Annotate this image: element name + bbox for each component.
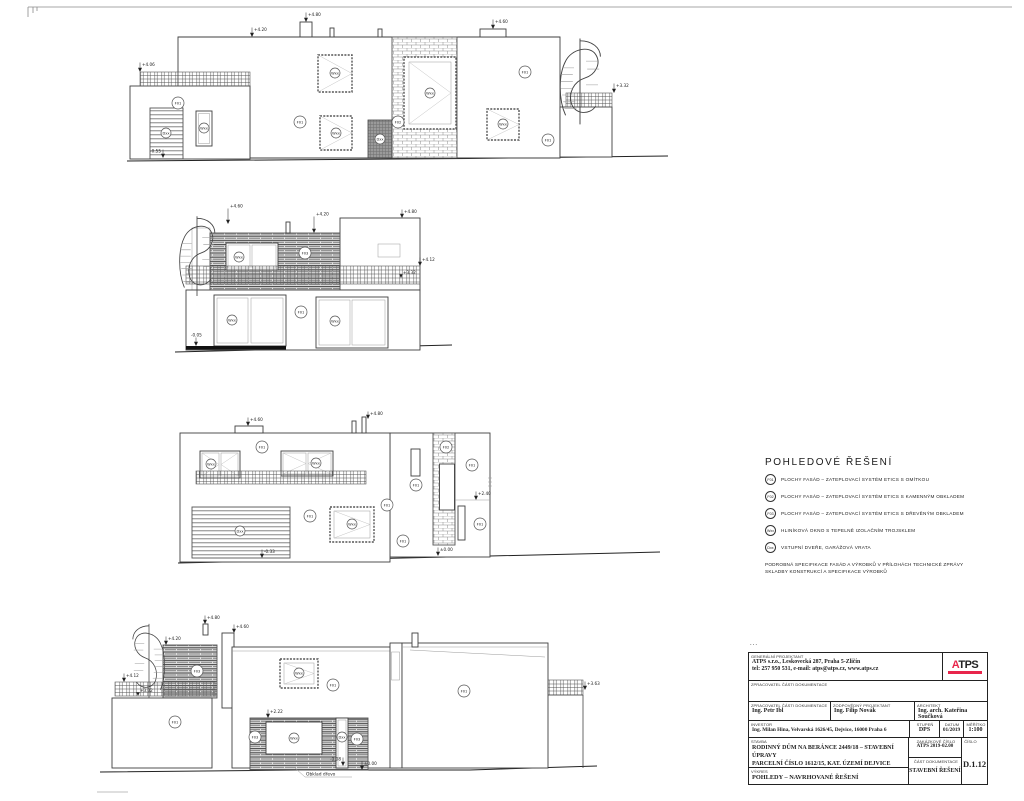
facade-tag: F01	[474, 518, 486, 530]
legend-item-text: VSTUPNÍ DVEŘE, GARÁŽOVÁ VRATA	[781, 545, 871, 550]
svg-text:-0.55: -0.55	[150, 149, 161, 154]
facade-tag: F03	[249, 731, 261, 743]
svg-text:-0.05: -0.05	[191, 333, 202, 338]
svg-text:F01: F01	[297, 121, 304, 125]
svg-text:Wxx: Wxx	[207, 463, 216, 467]
facade-tag: F02	[440, 441, 452, 453]
svg-text:Wxx: Wxx	[499, 123, 508, 127]
legend-item-text: PLOCHY FASÁD – ZATEPLOVACÍ SYSTÉM ETICS …	[781, 511, 964, 516]
svg-text:Wxx: Wxx	[312, 462, 321, 466]
legend-item: Wxx HLINÍKOVÁ OKNO S TEPELNĚ IZOLAČNÍM T…	[765, 525, 1003, 536]
facade-tag: F01	[169, 716, 181, 728]
svg-text:Dxx: Dxx	[376, 138, 384, 142]
level-mark: +4.80	[366, 411, 383, 419]
facade-tag: F01	[519, 66, 531, 78]
svg-text:F01: F01	[298, 311, 305, 315]
svg-text:F03: F03	[302, 252, 309, 256]
elevation-2: Wxx F03 F01 Wxx Wxx +4.60 +4.20 +4.80 +4…	[175, 204, 452, 353]
window-tag: Wxx	[498, 119, 508, 129]
svg-text:-0.33: -0.33	[264, 549, 275, 554]
facade-tag: F03	[765, 508, 776, 519]
railing	[186, 266, 420, 284]
legend-item-text: PLOCHY FASÁD – ZATEPLOVACÍ SYSTÉM ETICS …	[781, 477, 929, 482]
title-block-bottom: STAVBA RODINNÝ DŮM NA BERÁNCE 2449/18 – …	[749, 738, 987, 784]
svg-text:+4.80: +4.80	[308, 12, 321, 17]
level-mark: +4.80	[203, 615, 220, 624]
svg-text:+4.20: +4.20	[168, 636, 181, 641]
svg-text:+2.22: +2.22	[270, 709, 283, 714]
svg-text:+4.80: +4.80	[207, 615, 220, 620]
svg-text:Wxx: Wxx	[200, 127, 209, 131]
svg-text:+4.06: +4.06	[142, 62, 155, 67]
svg-text:Wxx: Wxx	[290, 737, 299, 741]
door-tag: Dxx	[161, 128, 171, 138]
legend-item: F01 PLOCHY FASÁD – ZATEPLOVACÍ SYSTÉM ET…	[765, 474, 1003, 485]
window-tag: Wxx	[331, 128, 341, 138]
facade-tag: F01	[172, 97, 184, 109]
svg-text:+4.60: +4.60	[495, 19, 508, 24]
facade-tag: F01	[466, 459, 478, 471]
title-block-dots: ...	[750, 641, 758, 647]
svg-text:+3.32: +3.32	[140, 688, 153, 693]
svg-text:F01: F01	[522, 71, 529, 75]
svg-text:F01: F01	[469, 464, 476, 468]
zakazkove-cislo-value: ATPS 2019-02.00	[909, 744, 962, 749]
legend-item: F02 PLOCHY FASÁD – ZATEPLOVACÍ SYSTÉM ET…	[765, 491, 1003, 502]
svg-text:+3.32: +3.32	[616, 83, 629, 88]
svg-text:+4.60: +4.60	[236, 624, 249, 629]
svg-text:+4.80: +4.80	[370, 411, 383, 416]
facade-tag: F01	[542, 134, 554, 146]
facade-tag: F01	[765, 474, 776, 485]
window-tag: Wxx	[227, 315, 237, 325]
svg-text:Wxx: Wxx	[332, 132, 341, 136]
svg-text:±0.00: ±0.00	[364, 761, 377, 766]
level-mark: +4.60	[232, 624, 249, 633]
atps-logo: ATPS	[942, 653, 987, 680]
level-mark: +4.60	[226, 204, 243, 225]
facade-tag: F03	[299, 247, 311, 259]
railing	[115, 682, 215, 696]
title-block-row-general: GENERÁLNÍ PROJEKTANT ATPS s.r.o., Leskov…	[749, 653, 987, 681]
svg-text:+3.63: +3.63	[587, 681, 600, 686]
legend-item: Dxx VSTUPNÍ DVEŘE, GARÁŽOVÁ VRATA	[765, 542, 1003, 553]
legend: POHLEDOVÉ ŘEŠENÍ F01 PLOCHY FASÁD – ZATE…	[765, 457, 1003, 575]
facade-tag: F02	[765, 491, 776, 502]
level-mark: +4.12	[418, 257, 435, 266]
svg-text:+4.80: +4.80	[404, 209, 417, 214]
elevation-3: F01 F01 F01 F01 F01 F01 F01 F02 Wxx Wxx …	[178, 411, 660, 563]
svg-text:+4.20: +4.20	[254, 27, 267, 32]
svg-text:F01: F01	[307, 515, 314, 519]
door-tag: Dxx	[375, 134, 385, 144]
door-tag: Dxx	[235, 526, 245, 536]
legend-title: POHLEDOVÉ ŘEŠENÍ	[765, 457, 1003, 468]
window-tag: Wxx	[425, 88, 435, 98]
svg-text:Wxx: Wxx	[235, 256, 244, 260]
svg-text:F01: F01	[330, 684, 337, 688]
door-tag: Dxx	[765, 542, 776, 553]
level-mark: +4.60	[246, 417, 263, 426]
facade-tag: F01	[294, 116, 306, 128]
svg-text:F01: F01	[384, 504, 391, 508]
svg-text:+4.60: +4.60	[230, 204, 243, 209]
facade-tag: F01	[327, 679, 339, 691]
railing	[196, 471, 366, 484]
svg-text:+3.32: +3.32	[403, 270, 416, 275]
stavba-line1: RODINNÝ DŮM NA BERÁNCE 2449/18 – STAVEBN…	[749, 744, 908, 760]
svg-text:F01: F01	[461, 690, 468, 694]
elevation-4: Obklad dřevo F01 F01 F01 F03 F03 F03 Wxx…	[100, 615, 600, 778]
svg-text:F01: F01	[175, 102, 182, 106]
drawing-sheet: { "labels": { "f01": "F01", "f02": "F02"…	[0, 0, 1024, 801]
facade-tag: F01	[458, 685, 470, 697]
facade-tag: F03	[351, 733, 363, 745]
svg-text:F02: F02	[443, 446, 450, 450]
cast-dokumentace-label: ČÁST DOKUMENTACE	[909, 758, 962, 764]
svg-text:+4.20: +4.20	[316, 212, 329, 217]
legend-note-line2: SKLADBY KONSTRUKCÍ A SPECIFIKACE VÝROBKŮ	[765, 568, 975, 575]
level-mark: +4.20	[250, 27, 267, 37]
svg-text:F01: F01	[259, 446, 266, 450]
title-block-row-people: ZPRACOVATEL ČÁSTI DOKUMENTACE Ing. Petr …	[749, 702, 987, 721]
legend-item-text: PLOCHY FASÁD – ZATEPLOVACÍ SYSTÉM ETICS …	[781, 494, 964, 499]
svg-text:F03: F03	[252, 736, 259, 740]
logo-red-bar	[948, 671, 982, 674]
facade-tag: F01	[397, 535, 409, 547]
svg-text:F01: F01	[477, 523, 484, 527]
title-block: GENERÁLNÍ PROJEKTANT ATPS s.r.o., Leskov…	[748, 652, 988, 785]
svg-text:+2.40: +2.40	[478, 491, 491, 496]
window-tag: Wxx	[234, 252, 244, 262]
svg-text:Wxx: Wxx	[426, 92, 435, 96]
window-tag: Wxx	[206, 459, 216, 469]
level-mark: +4.80	[400, 209, 417, 218]
svg-text:Wxx: Wxx	[348, 523, 357, 527]
svg-text:F01: F01	[545, 139, 552, 143]
svg-text:Dxx: Dxx	[162, 132, 170, 136]
window-tag: Wxx	[330, 68, 340, 78]
datum-value: 01/2019	[940, 727, 963, 733]
window-tag: Wxx	[199, 123, 209, 133]
svg-text:Wxx: Wxx	[228, 319, 237, 323]
elevation-1: F01 F01 F01 F01 F02 Wxx Wxx Wxx Wxx Wxx …	[127, 12, 668, 161]
title-block-row-investor: INVESTOR Ing. Milan Hina, Velvarská 1626…	[749, 721, 987, 738]
level-mark: +4.60	[491, 19, 508, 29]
window-tag: Wxx	[294, 668, 304, 678]
legend-note-line1: PODROBNÁ SPECIFIKACE FASÁD A VÝROBKŮ V P…	[765, 561, 975, 568]
svg-text:F03: F03	[354, 738, 361, 742]
window-tag: Wxx	[311, 458, 321, 468]
window-tag: Wxx	[289, 733, 299, 743]
svg-text:Dxx: Dxx	[338, 736, 346, 740]
facade-tag: F01	[256, 441, 268, 453]
facade-tag: F01	[381, 499, 393, 511]
window-tag: Wxx	[347, 519, 357, 529]
railing	[140, 72, 250, 86]
legend-note: PODROBNÁ SPECIFIKACE FASÁD A VÝROBKŮ V P…	[765, 561, 975, 575]
svg-text:Wxx: Wxx	[331, 320, 340, 324]
svg-text:±0.00: ±0.00	[440, 547, 453, 552]
zodpovedny-projektant-name: Ing. Filip Novák	[831, 708, 914, 714]
zpracovatel-name: Ing. Petr Ibl	[749, 708, 830, 714]
architekt-name: Ing. arch. Kateřina Součková	[915, 708, 987, 720]
svg-text:F01: F01	[172, 721, 179, 725]
facade-tag: F02	[392, 116, 404, 128]
zpracovatel-label: ZPRACOVATEL ČÁSTI DOKUMENTACE	[749, 681, 987, 687]
level-mark: +3.32	[612, 83, 629, 93]
vykres-value: POHLEDY – NAVRHOVANÉ ŘEŠENÍ	[749, 774, 908, 781]
svg-text:F03: F03	[194, 670, 201, 674]
stavba-line2: PARCELNÍ ČÍSLO 1612/15, KAT. ÚZEMÍ DEJVI…	[749, 760, 908, 768]
facade-tag: F01	[295, 306, 307, 318]
window-tag: Wxx	[330, 316, 340, 326]
legend-item: F03 PLOCHY FASÁD – ZATEPLOVACÍ SYSTÉM ET…	[765, 508, 1003, 519]
stupen-value: DPS	[910, 727, 939, 733]
cast-dokumentace-value: STAVEBNÍ ŘEŠENÍ	[909, 764, 962, 774]
company-address: ATPS s.r.o., Leskovecká 287, Praha 5-Zli…	[749, 659, 942, 666]
wood-cladding-callout: Obklad dřevo	[306, 771, 336, 778]
facade-tag: F01	[410, 479, 422, 491]
level-mark: +4.20	[312, 212, 329, 234]
investor-name: Ing. Milan Hina, Velvarská 1626/45, Dejv…	[749, 727, 909, 733]
svg-text:F01: F01	[400, 540, 407, 544]
level-mark: +4.06	[138, 62, 155, 72]
svg-text:+4.12: +4.12	[126, 673, 139, 678]
title-block-row-processor-empty: ZPRACOVATEL ČÁSTI DOKUMENTACE	[749, 681, 987, 702]
window-tag: Wxx	[765, 525, 776, 536]
company-contact: tel: 257 950 531, e-mail: atps@atps.cz, …	[749, 666, 942, 673]
svg-text:Wxx: Wxx	[331, 72, 340, 76]
svg-text:+4.12: +4.12	[422, 257, 435, 262]
svg-text:Dxx: Dxx	[236, 530, 244, 534]
level-mark: +4.80	[304, 12, 321, 22]
railing	[548, 680, 583, 695]
legend-item-text: HLINÍKOVÁ OKNO S TEPELNĚ IZOLAČNÍM TROJS…	[781, 528, 915, 533]
svg-text:-0.08: -0.08	[330, 757, 341, 762]
svg-text:F02: F02	[395, 121, 402, 125]
logo-letters-tps: TPS	[958, 659, 978, 671]
level-mark: +4.12	[122, 673, 139, 682]
drawing-number: D.1.12	[962, 744, 987, 784]
facade-tag: F03	[191, 665, 203, 677]
facade-tag: F01	[304, 510, 316, 522]
svg-text:+4.60: +4.60	[250, 417, 263, 422]
meritko-value: 1:100	[964, 727, 987, 733]
level-mark: +3.63	[583, 681, 600, 690]
svg-text:F01: F01	[413, 484, 420, 488]
door-tag: Dxx	[337, 732, 347, 742]
svg-text:Wxx: Wxx	[295, 672, 304, 676]
level-mark: +4.20	[164, 636, 181, 645]
